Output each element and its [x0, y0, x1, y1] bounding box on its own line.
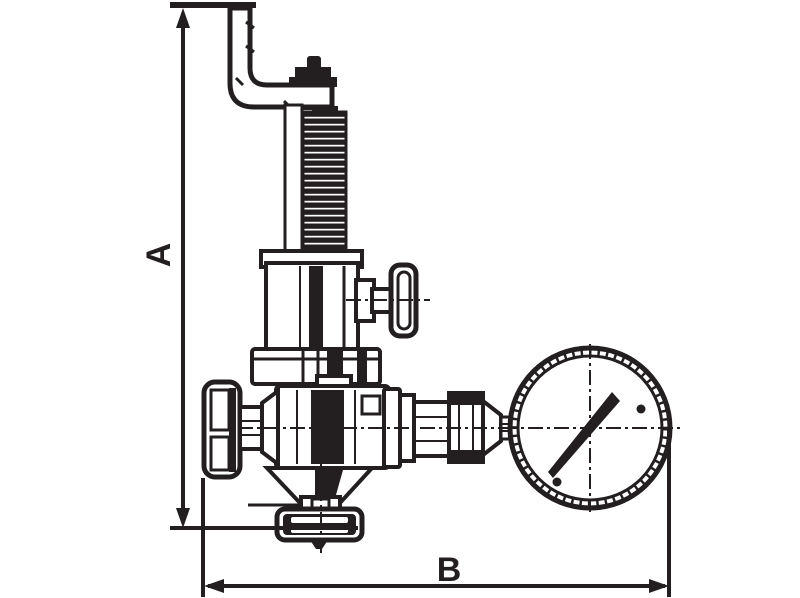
technical-drawing-canvas: A B: [0, 0, 800, 598]
arrow-down-icon: [176, 508, 190, 528]
dimension-b-label: B: [437, 551, 462, 589]
dimension-a-top-tick: [170, 2, 256, 8]
threaded-stem: [303, 112, 346, 258]
spring-housing: [285, 105, 346, 258]
arrow-left-icon: [204, 579, 224, 593]
arrow-up-icon: [176, 8, 190, 28]
gauge-dot-upper: [637, 405, 646, 414]
outlet-tip: [310, 540, 328, 549]
valve-technical-drawing: A B: [0, 0, 800, 598]
arrow-right-icon: [649, 579, 669, 593]
dimension-a-label: A: [140, 243, 178, 268]
valve-body: [276, 376, 389, 468]
outlet-assembly: [248, 460, 372, 556]
pressure-gauge: [502, 344, 680, 512]
gauge-dot-lower: [553, 478, 562, 487]
handwheel: [204, 382, 278, 477]
